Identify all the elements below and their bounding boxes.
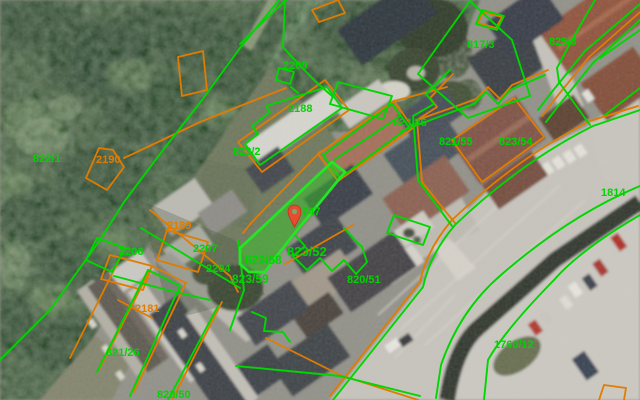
svg-text:820/51: 820/51 bbox=[347, 274, 381, 286]
svg-text:2207: 2207 bbox=[193, 243, 217, 255]
svg-text:823/86: 823/86 bbox=[393, 117, 427, 129]
svg-text:2190: 2190 bbox=[96, 154, 120, 166]
svg-text:1814: 1814 bbox=[601, 187, 626, 199]
svg-text:2206: 2206 bbox=[119, 246, 143, 258]
svg-text:2204: 2204 bbox=[206, 263, 231, 275]
svg-text:2188: 2188 bbox=[288, 103, 312, 115]
svg-text:821/26: 821/26 bbox=[106, 347, 140, 359]
svg-text:821/55: 821/55 bbox=[439, 136, 473, 148]
svg-text:823/54: 823/54 bbox=[499, 136, 534, 148]
svg-text:1760/12: 1760/12 bbox=[494, 339, 534, 351]
svg-text:817/3: 817/3 bbox=[467, 39, 495, 51]
svg-text:823/50: 823/50 bbox=[157, 389, 191, 400]
svg-text:825/8: 825/8 bbox=[549, 36, 577, 48]
svg-text:822/1: 822/1 bbox=[33, 153, 61, 165]
svg-text:823/59: 823/59 bbox=[232, 272, 269, 286]
svg-text:2209: 2209 bbox=[283, 60, 307, 72]
svg-text:823/52: 823/52 bbox=[287, 244, 327, 259]
svg-text:2189: 2189 bbox=[167, 220, 191, 232]
svg-text:823/58: 823/58 bbox=[245, 253, 282, 267]
svg-text:823/2: 823/2 bbox=[233, 146, 261, 158]
svg-text:2181: 2181 bbox=[135, 303, 159, 315]
